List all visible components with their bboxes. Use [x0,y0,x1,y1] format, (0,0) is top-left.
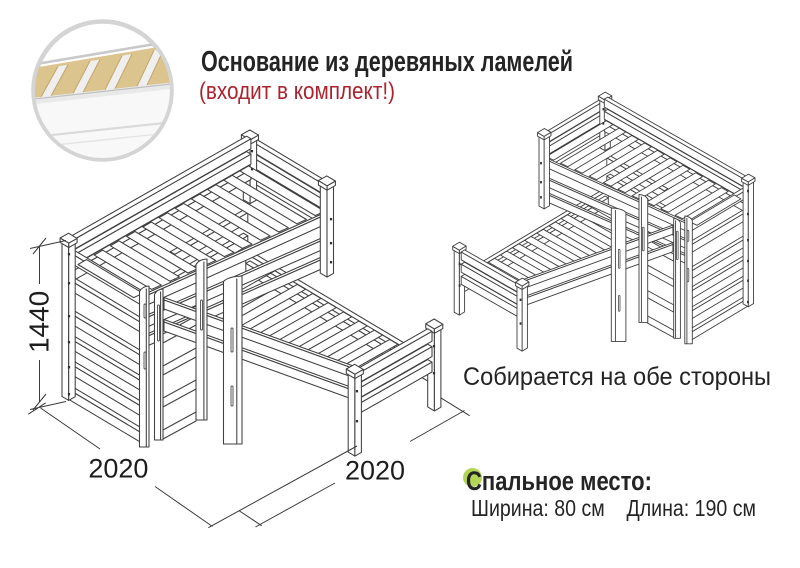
svg-text:2020: 2020 [345,456,405,486]
svg-text:1440: 1440 [24,291,55,353]
svg-text:2020: 2020 [88,454,148,484]
